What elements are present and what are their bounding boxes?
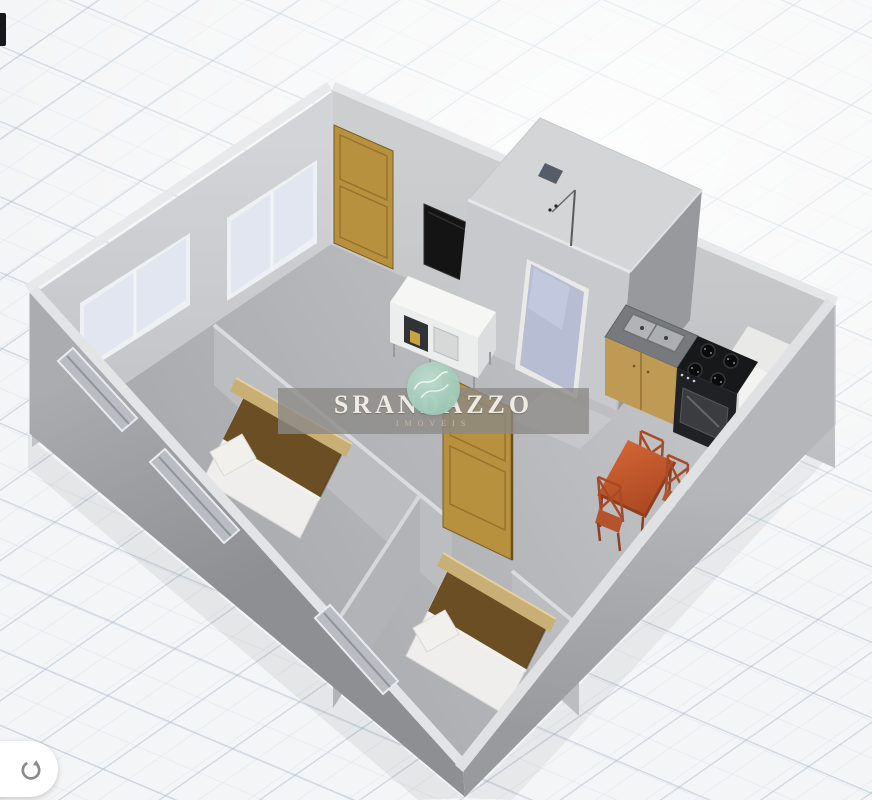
partial-ui-element xyxy=(0,13,6,46)
interior-door-open xyxy=(443,375,512,560)
floorplan-viewer: SRANDAZZO IMÓVEIS xyxy=(0,0,872,800)
rotate-icon xyxy=(17,755,45,783)
floorplan-3d-canvas[interactable] xyxy=(0,0,872,800)
entry-door xyxy=(334,125,393,269)
rotate-view-button[interactable] xyxy=(0,741,58,797)
